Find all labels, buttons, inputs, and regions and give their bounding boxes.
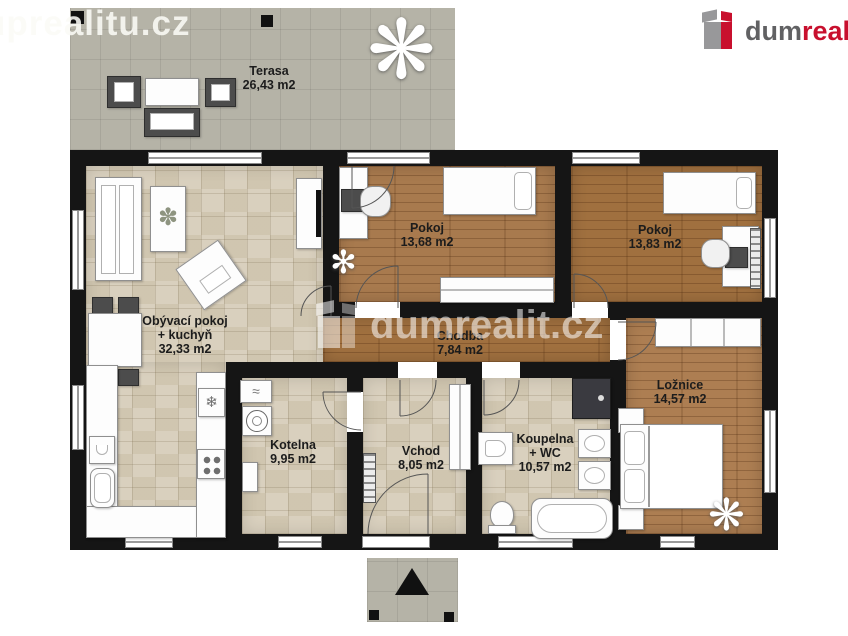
- room-name: Pokoj: [605, 223, 705, 237]
- room-label-obyvaci-pokoj: Obývací pokoj + kuchyň 32,33 m2: [120, 314, 250, 356]
- floor-plan: ❋: [0, 0, 848, 636]
- room-area: 13,68 m2: [377, 235, 477, 249]
- room-label-koupelna: Koupelna + WC 10,57 m2: [495, 432, 595, 474]
- dumrealit-box-icon: [314, 300, 360, 350]
- room-name: Vchod: [371, 444, 471, 458]
- dumrealit-box-icon: [700, 10, 738, 52]
- room-label-vchod: Vchod 8,05 m2: [371, 444, 471, 472]
- room-area: 32,33 m2: [120, 342, 250, 356]
- watermark-center: dumrealit.cz: [314, 300, 603, 350]
- brand-red: realit: [802, 16, 848, 46]
- door-arc: [368, 474, 428, 534]
- room-area: 8,05 m2: [371, 458, 471, 472]
- brand-text: dumrealit.cz: [745, 16, 848, 47]
- room-name: Koupelna: [495, 432, 595, 446]
- room-area: 10,57 m2: [495, 460, 595, 474]
- room-area: 26,43 m2: [214, 78, 324, 92]
- door-arc: [323, 392, 361, 430]
- room-area: 14,57 m2: [630, 392, 730, 406]
- room-name2: + kuchyň: [120, 328, 250, 342]
- room-label-pokoj-1: Pokoj 13,68 m2: [377, 221, 477, 249]
- room-name: Ložnice: [630, 378, 730, 392]
- room-label-loznice: Ložnice 14,57 m2: [630, 378, 730, 406]
- room-name2: + WC: [495, 446, 595, 460]
- room-area: 9,95 m2: [243, 452, 343, 466]
- brand-gray: dum: [745, 16, 802, 46]
- watermark-text: dumrealit.cz: [370, 303, 603, 348]
- door-arc: [618, 322, 656, 360]
- room-name: Obývací pokoj: [120, 314, 250, 328]
- room-area: 13,83 m2: [605, 237, 705, 251]
- door-arc: [352, 166, 394, 208]
- watermark-top-left: uprealitu.cz: [0, 4, 190, 44]
- room-label-pokoj-2: Pokoj 13,83 m2: [605, 223, 705, 251]
- room-label-kotelna: Kotelna 9,95 m2: [243, 438, 343, 466]
- room-label-terasa: Terasa 26,43 m2: [214, 64, 324, 92]
- room-name: Pokoj: [377, 221, 477, 235]
- room-name: Kotelna: [243, 438, 343, 452]
- door-arc: [484, 380, 519, 415]
- dumrealit-logo: dumrealit.cz: [700, 10, 848, 52]
- room-name: Terasa: [214, 64, 324, 78]
- door-arc: [400, 380, 436, 416]
